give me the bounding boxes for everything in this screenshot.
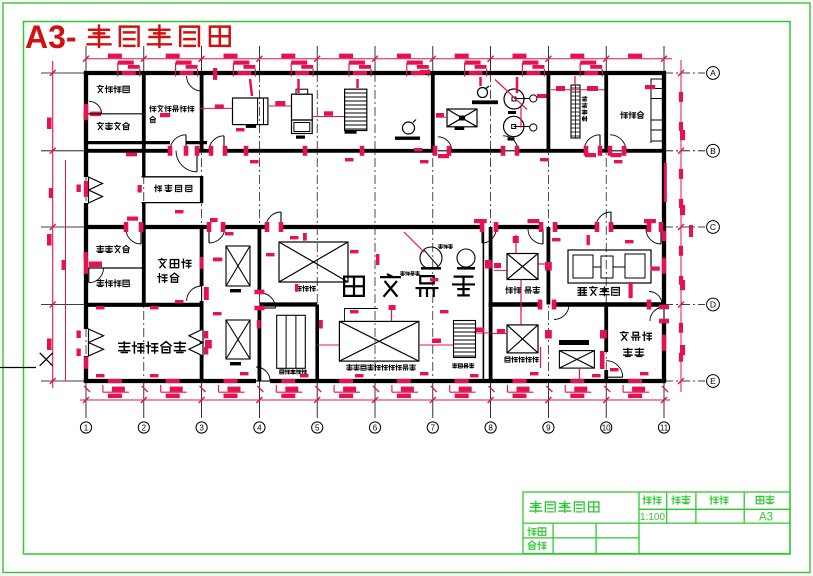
svg-text:E: E <box>710 376 716 386</box>
svg-text:2: 2 <box>142 423 147 432</box>
svg-text:6: 6 <box>373 423 378 432</box>
svg-text:C: C <box>710 222 716 232</box>
svg-text:A: A <box>710 68 716 78</box>
svg-text:9: 9 <box>546 423 551 432</box>
svg-text:3: 3 <box>199 423 204 432</box>
svg-text:10: 10 <box>602 423 611 432</box>
svg-text:A3-: A3- <box>25 19 77 55</box>
svg-text:A3: A3 <box>759 512 773 524</box>
svg-text:B: B <box>710 146 716 156</box>
svg-text:7: 7 <box>431 423 436 432</box>
svg-text:1:100: 1:100 <box>640 512 665 523</box>
svg-text:D: D <box>710 300 716 310</box>
svg-text:11: 11 <box>660 423 669 432</box>
svg-text:1: 1 <box>84 423 89 432</box>
svg-text:8: 8 <box>488 423 493 432</box>
svg-text:4: 4 <box>257 423 262 432</box>
svg-text:5: 5 <box>315 423 320 432</box>
